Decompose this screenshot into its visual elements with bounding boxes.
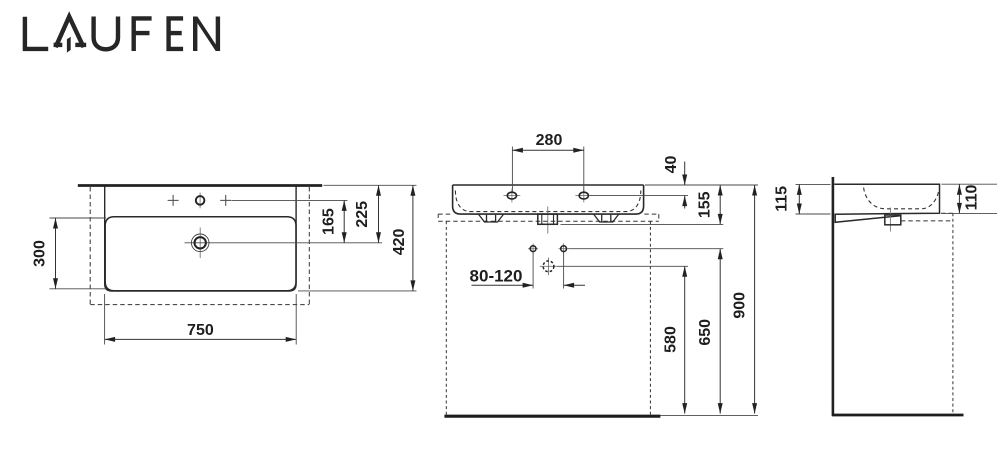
svg-text:650: 650 bbox=[697, 319, 714, 346]
svg-text:580: 580 bbox=[662, 326, 679, 353]
svg-text:165: 165 bbox=[320, 208, 337, 235]
svg-text:280: 280 bbox=[536, 132, 563, 149]
svg-text:80-120: 80-120 bbox=[470, 267, 523, 286]
svg-text:110: 110 bbox=[964, 184, 981, 210]
svg-text:115: 115 bbox=[773, 186, 790, 212]
svg-text:40: 40 bbox=[663, 156, 680, 174]
svg-text:420: 420 bbox=[391, 228, 408, 255]
svg-text:900: 900 bbox=[732, 292, 749, 319]
svg-text:225: 225 bbox=[354, 201, 371, 228]
svg-text:155: 155 bbox=[697, 191, 714, 218]
svg-text:300: 300 bbox=[32, 240, 49, 267]
svg-text:750: 750 bbox=[187, 322, 214, 339]
